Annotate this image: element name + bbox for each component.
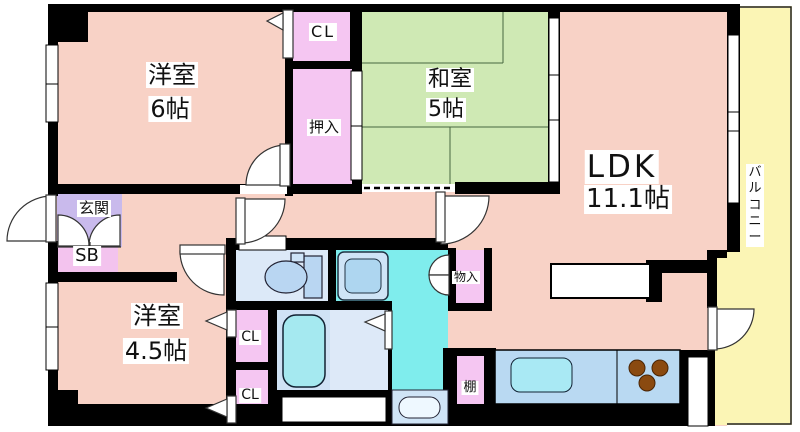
vanity-sink bbox=[392, 390, 448, 424]
kitchen-sink bbox=[511, 358, 572, 392]
label-ldk-name: LDK bbox=[585, 150, 659, 184]
ldk-counter bbox=[551, 264, 650, 298]
label-oshiire: 押入 bbox=[307, 119, 341, 136]
label-japanese5-size: 5帖 bbox=[426, 98, 466, 122]
label-closet-mid: CL bbox=[239, 330, 261, 345]
washing-machine bbox=[338, 252, 388, 300]
label-ldk-size: 11.1帖 bbox=[584, 185, 672, 214]
label-closet-top: CL bbox=[309, 23, 337, 41]
label-storage: 物入 bbox=[452, 271, 480, 284]
label-western45-size: 4.5帖 bbox=[123, 338, 189, 364]
service-niche bbox=[688, 357, 708, 426]
floorplan-drawing bbox=[0, 0, 800, 432]
window-east-balcony bbox=[728, 35, 739, 203]
floorplan: 洋室 6帖 和室 5帖 LDK 11.1帖 洋室 4.5帖 玄関 SB CL 押… bbox=[0, 0, 800, 432]
kitchen-counter-unit bbox=[495, 350, 680, 404]
label-western45-name: 洋室 bbox=[131, 303, 183, 329]
label-balcony: バルコニー bbox=[746, 164, 764, 247]
sliding-door-washitsu-ldk bbox=[549, 18, 559, 182]
fusuma-dashed-opening bbox=[362, 184, 455, 192]
label-western6-size: 6帖 bbox=[148, 96, 191, 122]
bathtub bbox=[283, 315, 325, 387]
label-shelf: 棚 bbox=[461, 381, 478, 395]
bathroom-window bbox=[282, 397, 386, 422]
label-japanese5-name: 和室 bbox=[426, 68, 474, 92]
label-entrance: 玄関 bbox=[77, 200, 111, 217]
label-shoebox: SB bbox=[73, 246, 101, 266]
label-closet-bottom: CL bbox=[239, 388, 261, 403]
label-western6-name: 洋室 bbox=[146, 62, 198, 88]
